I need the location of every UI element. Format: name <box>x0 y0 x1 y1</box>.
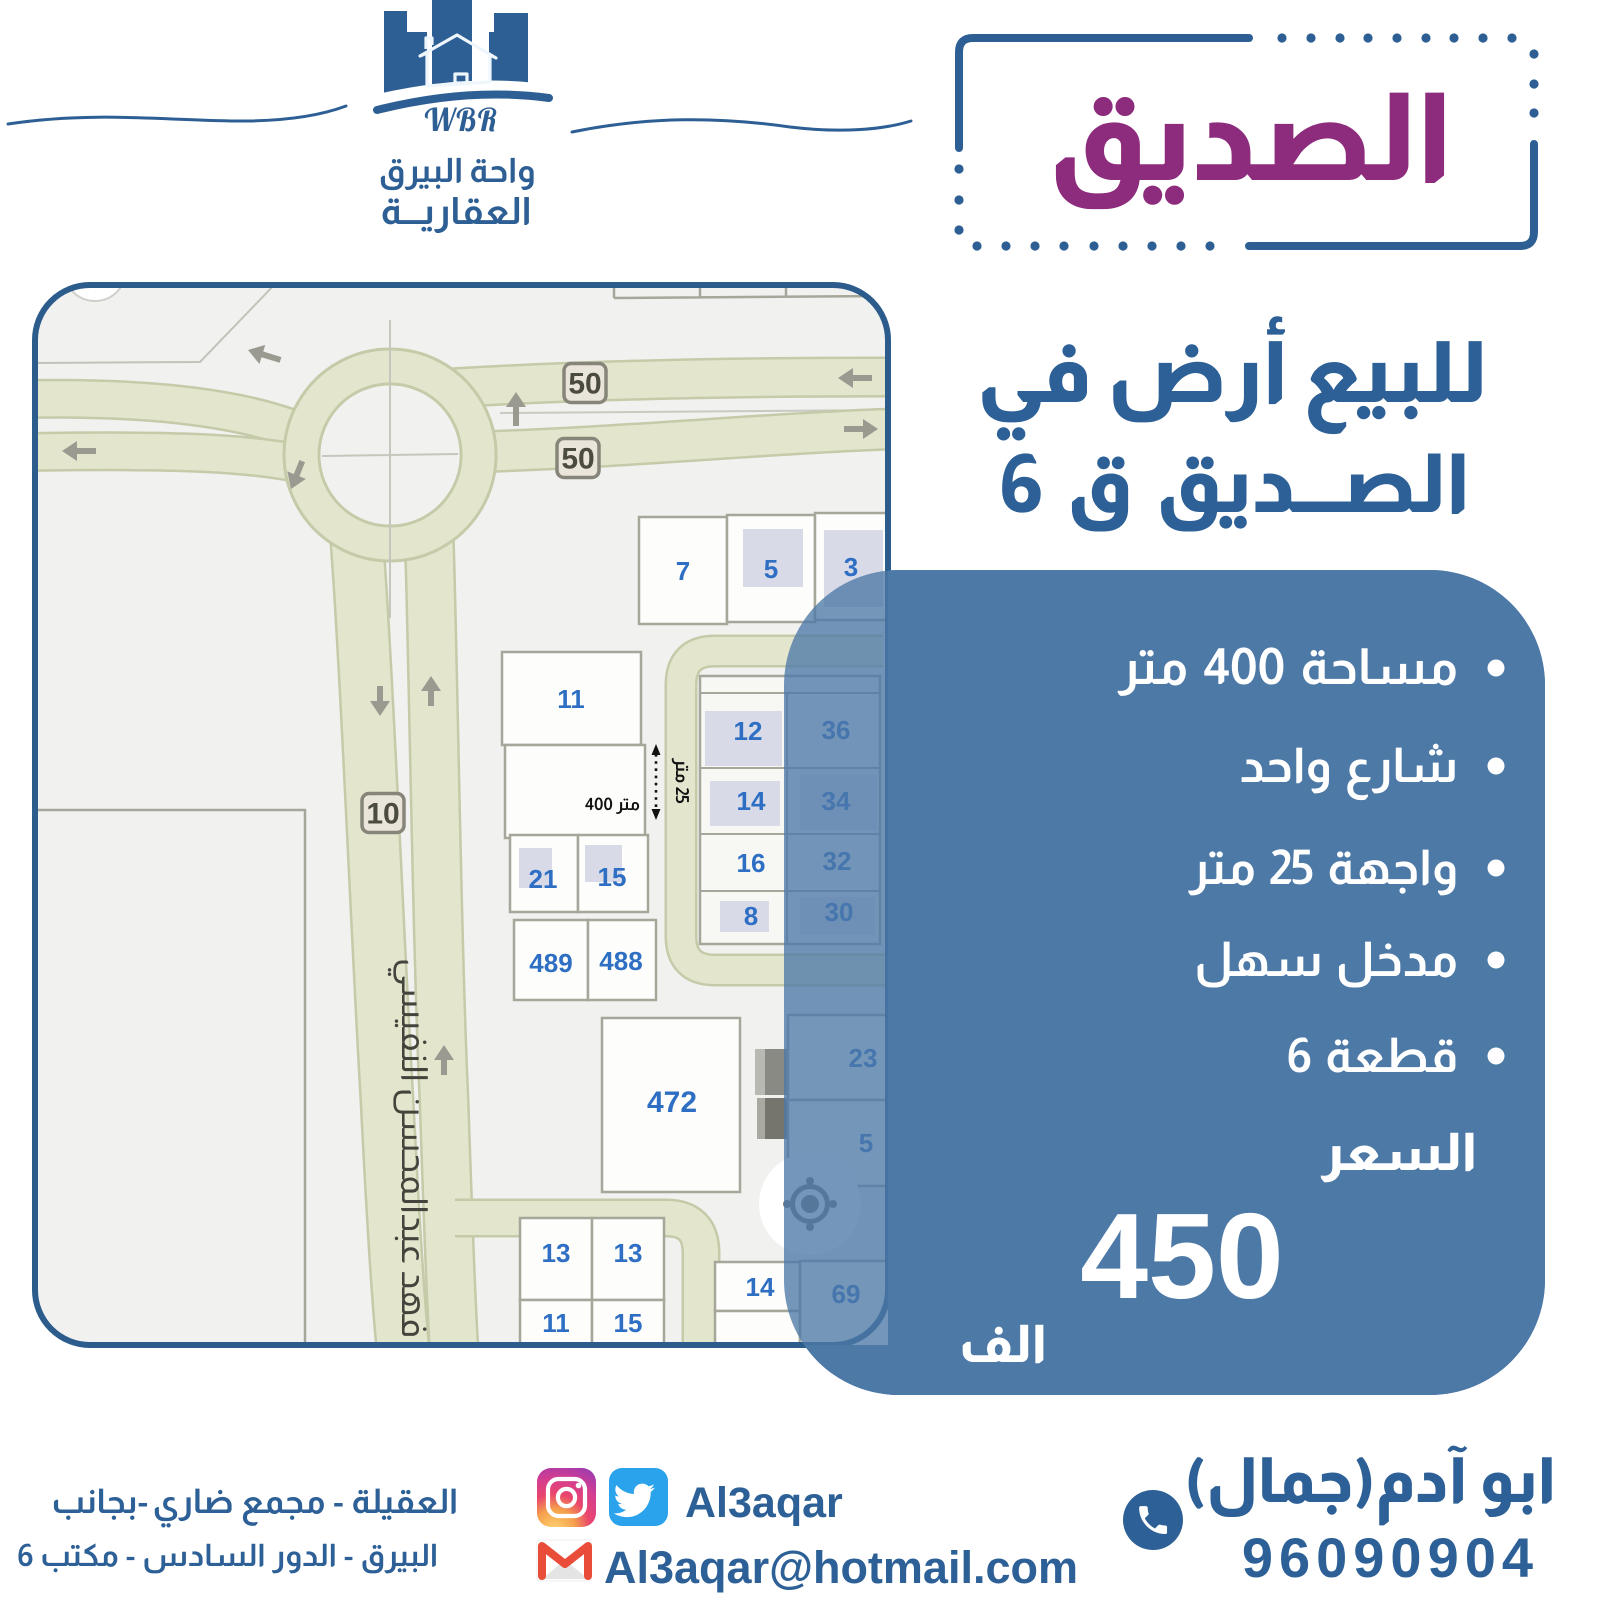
svg-text:21: 21 <box>529 864 558 894</box>
svg-text:15: 15 <box>614 1308 643 1338</box>
svg-text:13: 13 <box>614 1238 643 1268</box>
svg-text:489: 489 <box>529 948 572 978</box>
svg-text:8: 8 <box>744 901 758 931</box>
svg-text:Al3aqar: Al3aqar <box>685 1479 843 1527</box>
svg-text:14: 14 <box>746 1272 775 1302</box>
svg-text:11: 11 <box>542 1308 570 1338</box>
svg-text:3: 3 <box>844 552 858 582</box>
svg-text:Al3aqar@hotmail.com: Al3aqar@hotmail.com <box>604 1542 1078 1593</box>
svg-text:488: 488 <box>599 946 642 976</box>
svg-text:11: 11 <box>557 684 585 714</box>
svg-text:13: 13 <box>542 1238 571 1268</box>
svg-text:16: 16 <box>737 848 766 878</box>
svg-text:12: 12 <box>734 716 763 746</box>
svg-text:15: 15 <box>598 862 627 892</box>
svg-text:10: 10 <box>366 798 399 831</box>
svg-text:450: 450 <box>1080 1188 1284 1324</box>
svg-text:7: 7 <box>676 556 690 586</box>
svg-text:50: 50 <box>568 368 601 401</box>
svg-text:5: 5 <box>764 554 778 584</box>
svg-text:96090904: 96090904 <box>1242 1526 1539 1589</box>
svg-text:14: 14 <box>737 786 766 816</box>
svg-text:50: 50 <box>561 443 594 476</box>
svg-text:472: 472 <box>647 1086 697 1119</box>
